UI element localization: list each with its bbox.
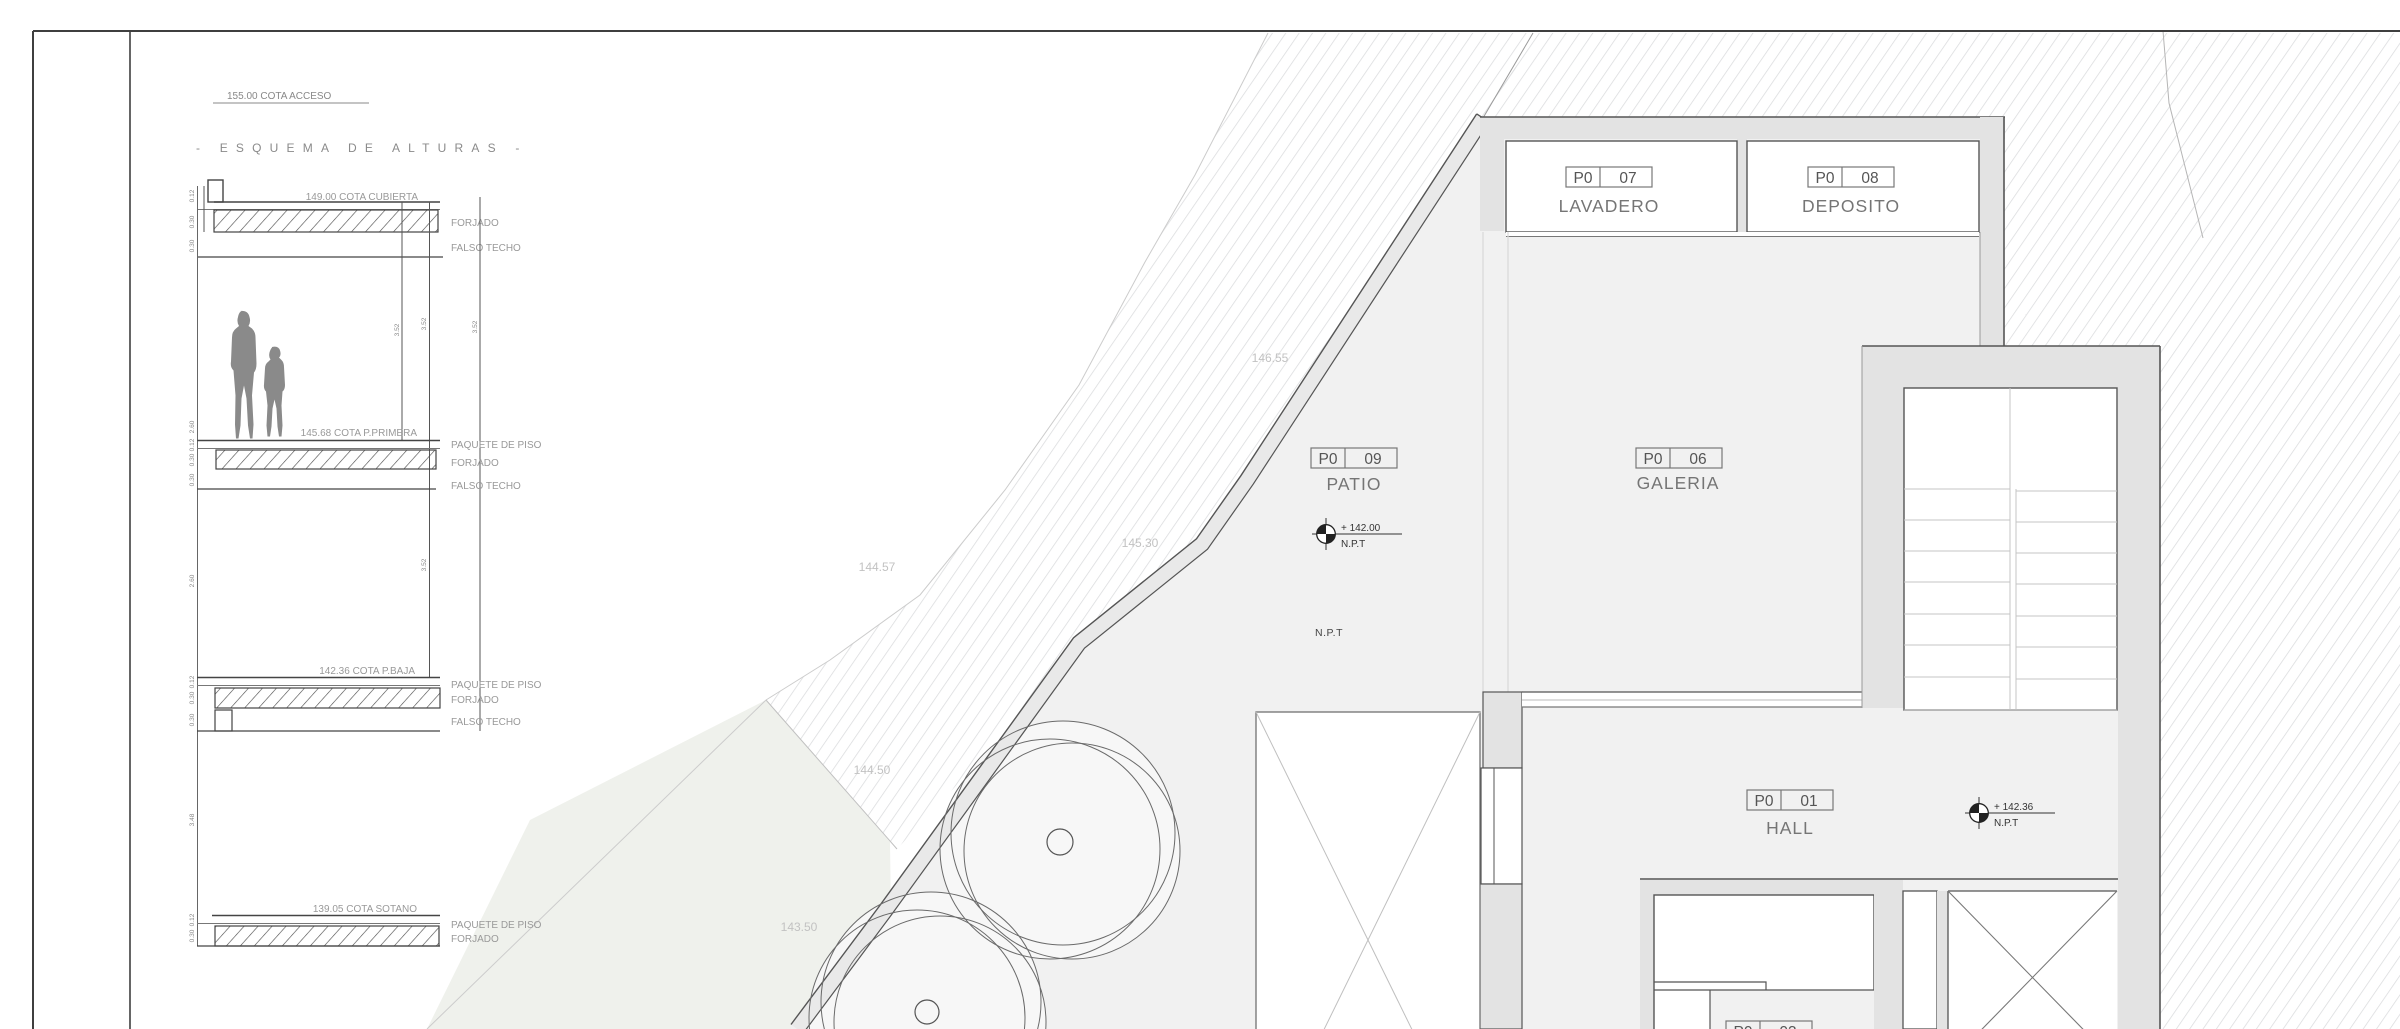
svg-text:0.12: 0.12 (189, 675, 196, 688)
svg-text:+ 142.36: + 142.36 (1994, 802, 2034, 813)
svg-text:145.68 COTA P.PRIMERA: 145.68 COTA P.PRIMERA (301, 428, 418, 439)
svg-text:P0: P0 (1319, 451, 1338, 468)
svg-text:P0: P0 (1755, 793, 1774, 810)
svg-text:144.50: 144.50 (854, 763, 891, 777)
svg-text:FALSO TECHO: FALSO TECHO (451, 717, 521, 728)
svg-text:2.60: 2.60 (189, 420, 196, 433)
svg-text:06: 06 (1689, 451, 1706, 468)
svg-text:3.52: 3.52 (421, 317, 428, 330)
svg-text:0.30: 0.30 (189, 691, 196, 704)
svg-text:143.50: 143.50 (781, 920, 818, 934)
svg-text:+ 142.00: + 142.00 (1341, 523, 1381, 534)
svg-text:PAQUETE DE PISO: PAQUETE DE PISO (451, 440, 542, 451)
svg-text:N.P.T: N.P.T (1341, 539, 1365, 550)
svg-text:3.48: 3.48 (189, 813, 196, 826)
svg-text:- ESQUEMA DE ALTURAS -: - ESQUEMA DE ALTURAS - (196, 141, 528, 155)
svg-text:N.P.T: N.P.T (1994, 818, 2018, 829)
svg-text:FORJADO: FORJADO (451, 218, 499, 229)
svg-text:144.57: 144.57 (859, 560, 896, 574)
svg-text:2.60: 2.60 (189, 574, 196, 587)
svg-text:139.05 COTA SOTANO: 139.05 COTA SOTANO (313, 904, 417, 915)
svg-text:0.30: 0.30 (189, 453, 196, 466)
svg-text:0.30: 0.30 (189, 215, 196, 228)
svg-text:FALSO TECHO: FALSO TECHO (451, 243, 521, 254)
svg-text:09: 09 (1364, 451, 1381, 468)
svg-text:0.12: 0.12 (189, 913, 196, 926)
svg-text:155.00 COTA ACCESO: 155.00 COTA ACCESO (227, 91, 332, 102)
svg-text:0.30: 0.30 (189, 473, 196, 486)
svg-text:LAVADERO: LAVADERO (1559, 196, 1660, 216)
svg-text:P0: P0 (1816, 170, 1835, 187)
svg-text:142.36 COTA P.BAJA: 142.36 COTA P.BAJA (319, 666, 415, 677)
svg-text:01: 01 (1800, 793, 1817, 810)
svg-text:P0: P0 (1574, 170, 1593, 187)
svg-text:146.55: 146.55 (1252, 351, 1289, 365)
svg-text:0.30: 0.30 (189, 713, 196, 726)
svg-text:FORJADO: FORJADO (451, 695, 499, 706)
svg-text:DEPOSITO: DEPOSITO (1802, 196, 1900, 216)
svg-text:PAQUETE DE PISO: PAQUETE DE PISO (451, 920, 542, 931)
svg-text:0.12: 0.12 (189, 189, 196, 202)
svg-text:0.30: 0.30 (189, 929, 196, 942)
svg-text:0.12: 0.12 (189, 438, 196, 451)
svg-text:N.P.T: N.P.T (1315, 627, 1343, 639)
svg-text:08: 08 (1861, 170, 1878, 187)
svg-text:GALERIA: GALERIA (1637, 473, 1720, 493)
svg-text:0.30: 0.30 (189, 239, 196, 252)
svg-text:FORJADO: FORJADO (451, 458, 499, 469)
svg-text:PAQUETE DE PISO: PAQUETE DE PISO (451, 680, 542, 691)
svg-text:P0: P0 (1734, 1024, 1753, 1029)
svg-text:P0: P0 (1644, 451, 1663, 468)
svg-text:03: 03 (1779, 1024, 1796, 1029)
svg-text:FORJADO: FORJADO (451, 934, 499, 945)
svg-text:3.52: 3.52 (421, 558, 428, 571)
svg-text:HALL: HALL (1766, 818, 1814, 838)
svg-text:3.52: 3.52 (394, 323, 401, 336)
svg-text:FALSO TECHO: FALSO TECHO (451, 481, 521, 492)
svg-text:PATIO: PATIO (1327, 474, 1382, 494)
svg-text:07: 07 (1619, 170, 1636, 187)
svg-text:145.30: 145.30 (1122, 536, 1159, 550)
svg-text:3.52: 3.52 (472, 320, 479, 333)
